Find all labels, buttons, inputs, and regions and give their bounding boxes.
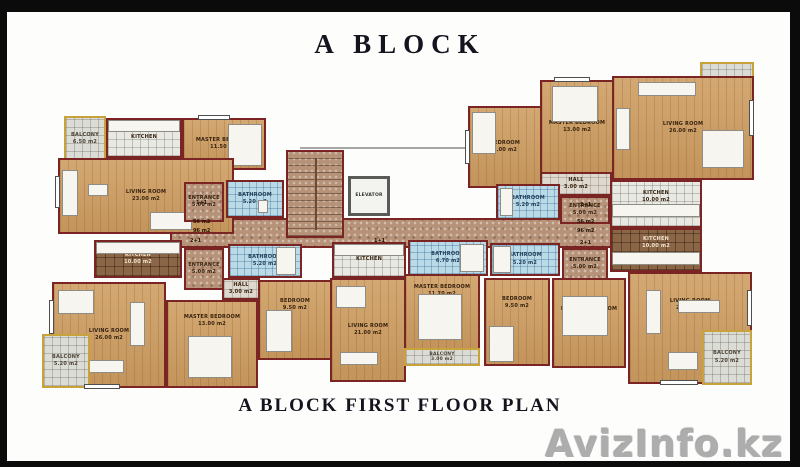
room-label: BALCONY5.20 m2 [44,336,88,386]
bathtub [276,247,296,275]
dining-table [702,130,744,168]
window [84,384,120,389]
bed [188,336,232,378]
kitchen-counter [334,244,404,256]
dining-table [336,286,366,308]
unit-area-label: 96 m2 [193,228,210,234]
unit-area-label: 96 m2 [577,228,594,234]
sofa [638,82,696,96]
sofa [340,352,378,365]
room-balcony-bottom-right: BALCONY5.20 m2 [702,330,752,385]
dining-table [58,290,94,314]
room-kitchen-bottom-right: KITCHEN10.00 m2 [610,228,702,272]
window [747,290,752,326]
unit-area-label: 56 m2 [193,219,210,225]
kitchen-counter [96,242,180,254]
bathtub [500,188,513,216]
dining-table [668,352,698,370]
sofa [62,170,78,216]
room-label: BALCONY5.20 m2 [704,332,750,383]
unit-type-label: 1+1 [196,200,207,206]
unit-type-label: 1+1 [374,238,385,244]
coffee-table [88,184,108,196]
room-balcony-top-left: BALCONY6.50 m2 [64,116,106,162]
unit-type-label: 2+1 [580,202,591,208]
window [465,130,470,164]
room-balcony-bottom-center: BALCONY3.00 m2 [404,348,480,366]
room-entrance-bottom-left: ENTRANCE5.00 m2 [184,248,224,290]
sofa [616,108,630,150]
room-label: ELEVATOR [351,179,387,213]
bed [472,112,496,154]
room-balcony-bottom-left: BALCONY5.20 m2 [42,334,90,388]
room-bathroom-top-left: BATHROOM5.20 m2 [226,180,284,218]
kitchen-counter [612,204,700,217]
unit-type-label: 2+1 [190,238,201,244]
toilet [258,200,268,213]
room-label: HALL3.00 m2 [224,280,258,298]
unit-type-label: 2+1 [580,240,591,246]
building-edge-line [300,147,468,149]
stair-rail [315,158,317,230]
room-entrance-bottom-right: ENTRANCE5.00 m2 [562,248,608,280]
bed [552,86,598,122]
room-label: BALCONY6.50 m2 [66,118,104,160]
window [660,380,698,385]
room-hall-bottom-left: HALL3.00 m2 [222,278,260,300]
window [55,176,60,208]
window [554,77,590,82]
staircase [286,150,344,238]
floor-plan-sheet: A BLOCK ELEVATOR BALCONY6.50 m2 KITCHEN … [0,0,800,467]
room-label: BATHROOM5.20 m2 [228,182,282,216]
room-label: BALCONY3.00 m2 [406,350,478,364]
page-title: A BLOCK [0,29,800,60]
kitchen-counter [108,120,180,132]
bed [266,310,292,352]
watermark: AvizInfo.kz [546,423,784,466]
kitchen-counter [612,252,700,265]
room-label: ENTRANCE5.00 m2 [564,250,606,278]
window [749,100,754,136]
sofa [646,290,661,334]
bed [562,296,608,336]
bathtub [460,244,484,272]
window [198,115,230,120]
sofa [678,300,720,313]
sofa [130,302,145,346]
elevator: ELEVATOR [348,176,390,216]
window [49,300,54,334]
unit-area-label: 56 m2 [577,219,594,225]
room-label: ENTRANCE5.00 m2 [186,250,222,288]
bed [418,294,462,340]
page-caption: A BLOCK FIRST FLOOR PLAN [0,395,800,417]
bathtub [493,246,511,273]
bed [489,326,514,362]
